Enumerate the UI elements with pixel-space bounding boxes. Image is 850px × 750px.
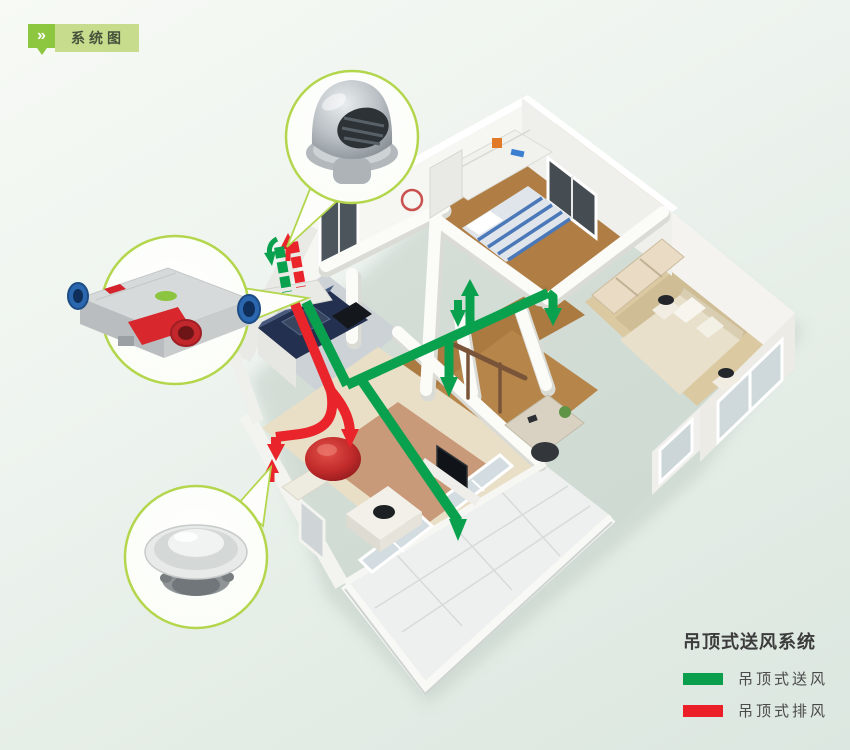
exhaust-label: 吊顶式排风	[738, 700, 828, 721]
legend-row-supply: 吊顶式送风	[683, 668, 828, 689]
section-badge: » 系统图	[28, 24, 139, 52]
exhaust-color-swatch	[683, 705, 723, 717]
legend-row-exhaust: 吊顶式排风	[683, 700, 828, 721]
exhaust-hood-bowl	[305, 437, 361, 481]
supply-label: 吊顶式送风	[738, 668, 828, 689]
double-chevron-right-icon: »	[28, 24, 55, 48]
legend-title: 吊顶式送风系统	[683, 628, 828, 654]
callout-outdoor-vent-hood	[286, 71, 418, 203]
system-diagram-page: » 系统图 吊顶式送风系统 吊顶式送风 吊顶式排风	[0, 0, 850, 750]
supply-color-swatch	[683, 673, 723, 685]
callout-ceiling-diffuser	[125, 486, 267, 628]
legend: 吊顶式送风系统 吊顶式送风 吊顶式排风	[683, 628, 828, 732]
supply-arrow-in	[264, 251, 276, 266]
section-badge-label: 系统图	[55, 24, 139, 52]
